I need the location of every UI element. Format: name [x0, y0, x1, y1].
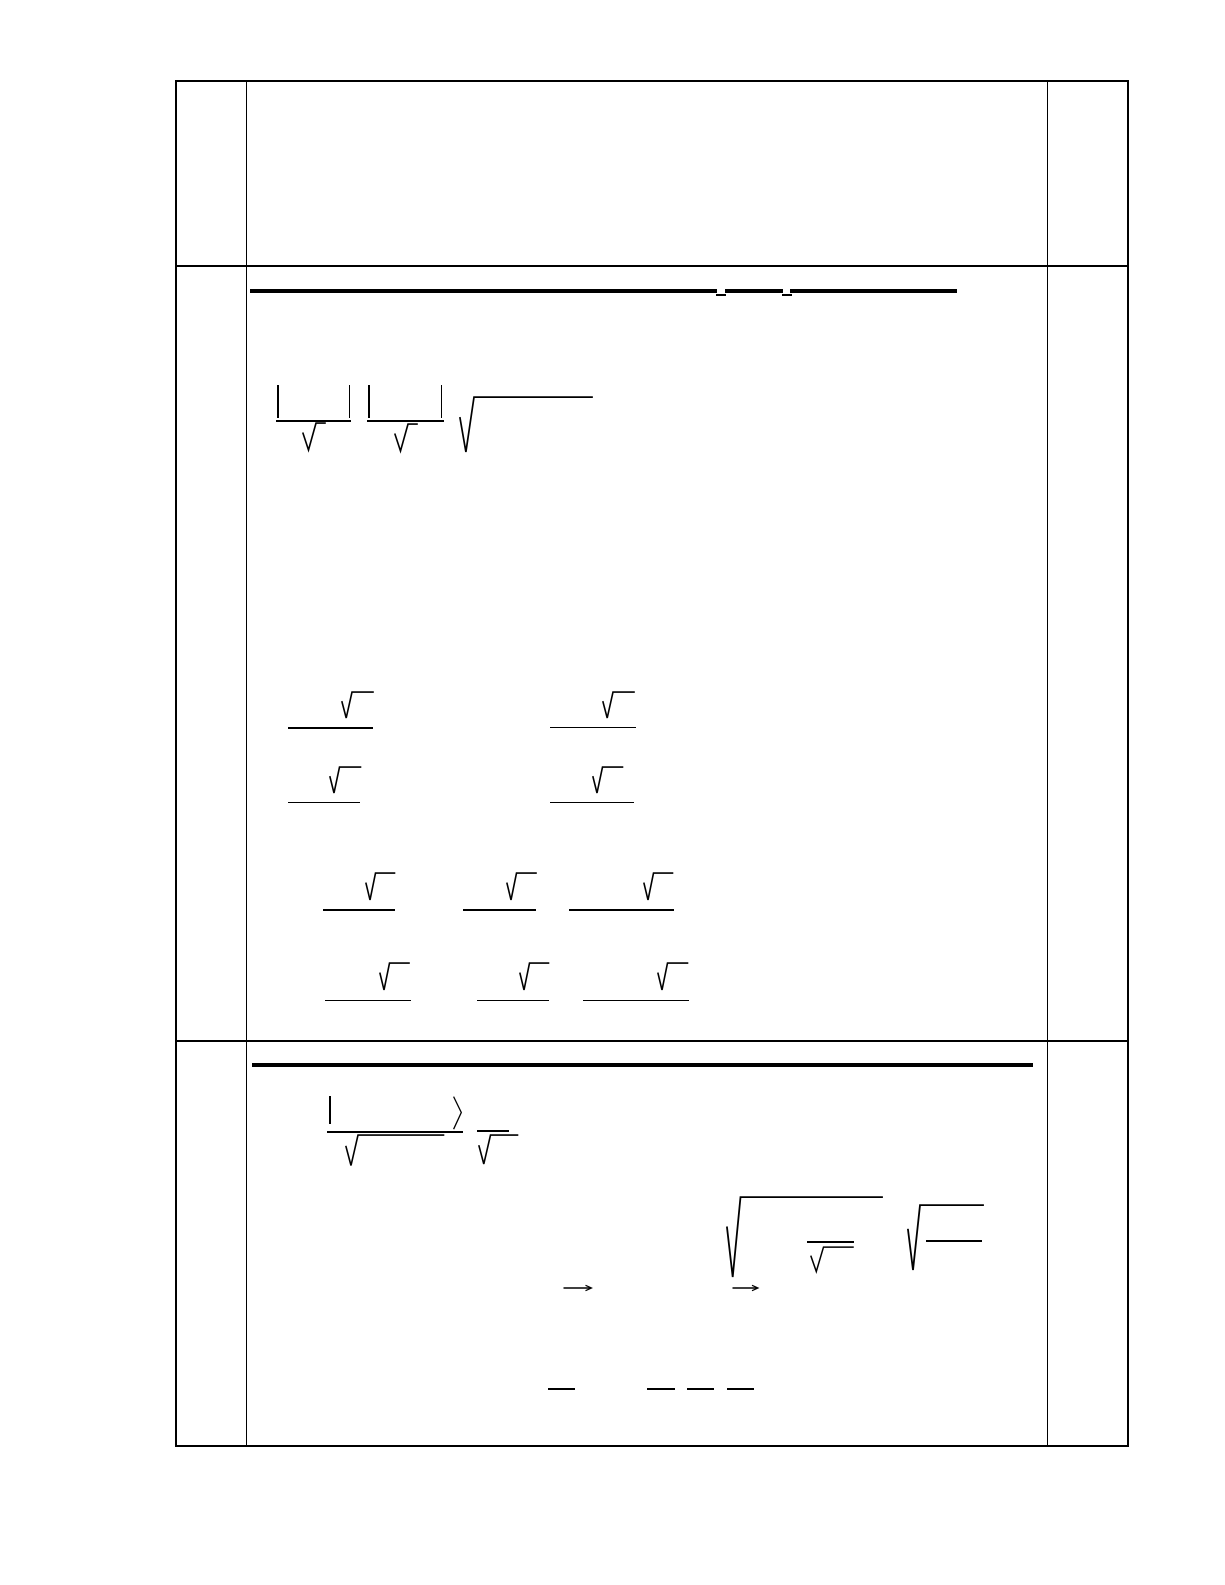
s1-frac-r1-left-sqrt — [341, 691, 374, 720]
s2-big-sqrt-2 — [907, 1204, 984, 1272]
s1-frac-r1-right-sqrt — [602, 691, 635, 720]
s2-big-sqrt-1 — [726, 1196, 883, 1279]
s1-frac-r4-a-sqrt — [379, 962, 410, 992]
s1-title-underscore-2 — [782, 294, 792, 296]
s1-frac-r1-left-bar — [288, 727, 373, 729]
s1-title-underscore-1 — [716, 294, 726, 296]
s1-frac-r2-left-bar — [288, 802, 361, 804]
s2-title-rule — [252, 1063, 1033, 1068]
s2-small-fraction-bar-3 — [687, 1388, 714, 1390]
s1-frac-r4-c-sqrt — [657, 962, 689, 992]
s1-frac-r2-right-bar — [550, 802, 634, 804]
s2-inner-left-bar — [329, 1096, 331, 1125]
cell-row2-col2 — [246, 265, 1047, 1040]
s1-long-sqrt — [459, 396, 593, 454]
s1-abs1-left-bar — [277, 385, 279, 418]
s1-frac-r3-b-bar — [463, 909, 537, 911]
s2-small-fraction-bar-4 — [727, 1388, 754, 1390]
s1-title-rule-seg-1 — [250, 289, 717, 294]
table-border-right — [1127, 80, 1129, 1447]
s1-abs1-right-bar — [349, 385, 351, 418]
cell-row3-col1 — [175, 1040, 246, 1445]
s2-big-sqrt-1-inner-bar — [807, 1241, 854, 1243]
s2-limit-arrow-2 — [732, 1283, 759, 1293]
s2-small-fraction-bar-2 — [647, 1388, 675, 1390]
s2-right-angle-bracket — [453, 1096, 463, 1130]
s1-abs2-sqrt — [394, 423, 418, 453]
s2-frac1-bar — [327, 1131, 463, 1133]
s1-abs2-right-bar — [441, 385, 443, 418]
cell-row1-col3 — [1047, 80, 1128, 265]
s1-frac-r2-right-sqrt — [592, 766, 624, 795]
s1-frac-r4-c-bar — [583, 1000, 689, 1002]
s1-frac-r3-a-bar — [323, 909, 395, 911]
s2-limit-arrow-1 — [563, 1283, 592, 1293]
s1-abs2-left-bar — [368, 385, 370, 418]
table-border-bottom — [175, 1445, 1129, 1447]
s1-frac-r4-a-bar — [325, 1000, 411, 1002]
s1-frac-r2-left-sqrt — [329, 766, 362, 795]
s2-small-fraction-bar-1 — [548, 1388, 576, 1390]
cell-row2-col3 — [1047, 265, 1128, 1040]
s1-frac-r4-b-bar — [477, 1000, 549, 1002]
s2-frac2-bar — [477, 1130, 509, 1132]
s1-frac-r3-a-sqrt — [365, 872, 396, 902]
cell-row1-col2 — [246, 80, 1047, 265]
s2-frac2-sqrt — [478, 1134, 519, 1166]
page — [0, 0, 1225, 1585]
cell-row3-col3 — [1047, 1040, 1128, 1445]
s1-frac-r3-b-sqrt — [506, 872, 537, 902]
cell-row1-col1 — [175, 80, 246, 265]
s1-abs1-sqrt — [302, 422, 326, 452]
s1-title-rule-seg-3 — [790, 289, 957, 294]
s1-frac-r1-right-bar — [550, 727, 636, 729]
s1-title-rule-seg-2 — [725, 289, 783, 294]
cell-row2-col1 — [175, 265, 246, 1040]
s1-frac-r3-c-bar — [569, 909, 674, 911]
s1-frac-r4-b-sqrt — [519, 962, 550, 992]
s2-frac1-sqrt — [345, 1134, 445, 1168]
s2-big-sqrt-1-inner-sqrt — [810, 1246, 854, 1274]
s2-big-sqrt-2-inner-bar — [926, 1240, 982, 1242]
s1-frac-r3-c-sqrt — [643, 872, 674, 902]
